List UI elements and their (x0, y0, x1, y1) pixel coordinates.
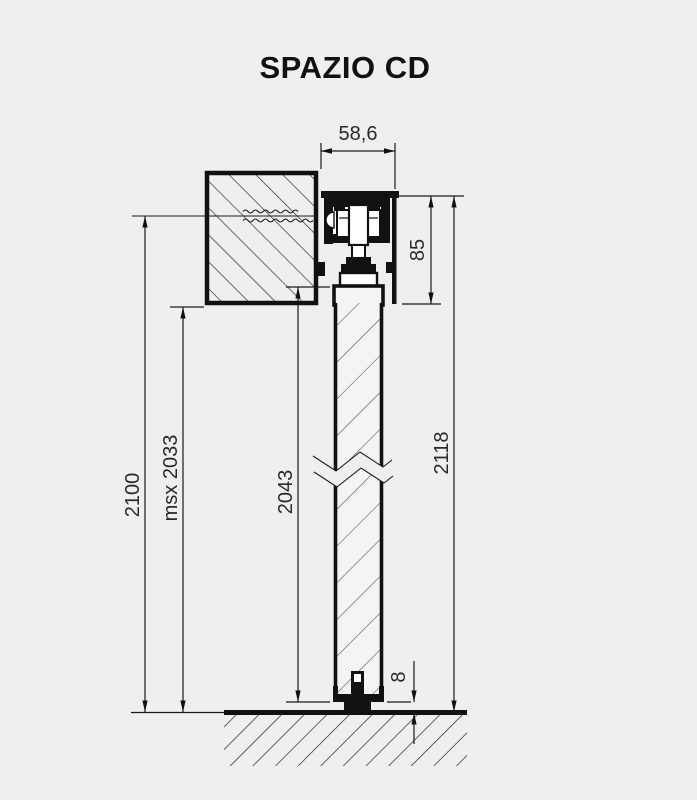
technical-drawing-page: SPAZIO CD (0, 0, 697, 800)
fascia-screw (386, 262, 393, 273)
floor-hatch (224, 715, 467, 766)
section-drawing-svg: SPAZIO CD (0, 0, 697, 800)
dim-passage-height-label: msx 2033 (160, 435, 182, 522)
door-top-clamp (334, 286, 383, 305)
ceiling-plate (321, 191, 399, 198)
dim-floor-gap-label: 8 (388, 671, 410, 682)
dim-track-height-label: 85 (407, 239, 429, 261)
dim-overall-height-label: 2118 (431, 431, 453, 474)
wall-header-section (207, 173, 316, 303)
door-panel (336, 303, 382, 698)
drawing-title: SPAZIO CD (260, 50, 431, 85)
dim-track-width-label: 58,6 (339, 123, 378, 145)
fascia-cover-plate (392, 196, 397, 304)
dim-fixing-height-label: 2100 (122, 473, 144, 518)
dim-door-height-label: 2043 (275, 470, 297, 515)
wall-bracket (316, 262, 325, 276)
